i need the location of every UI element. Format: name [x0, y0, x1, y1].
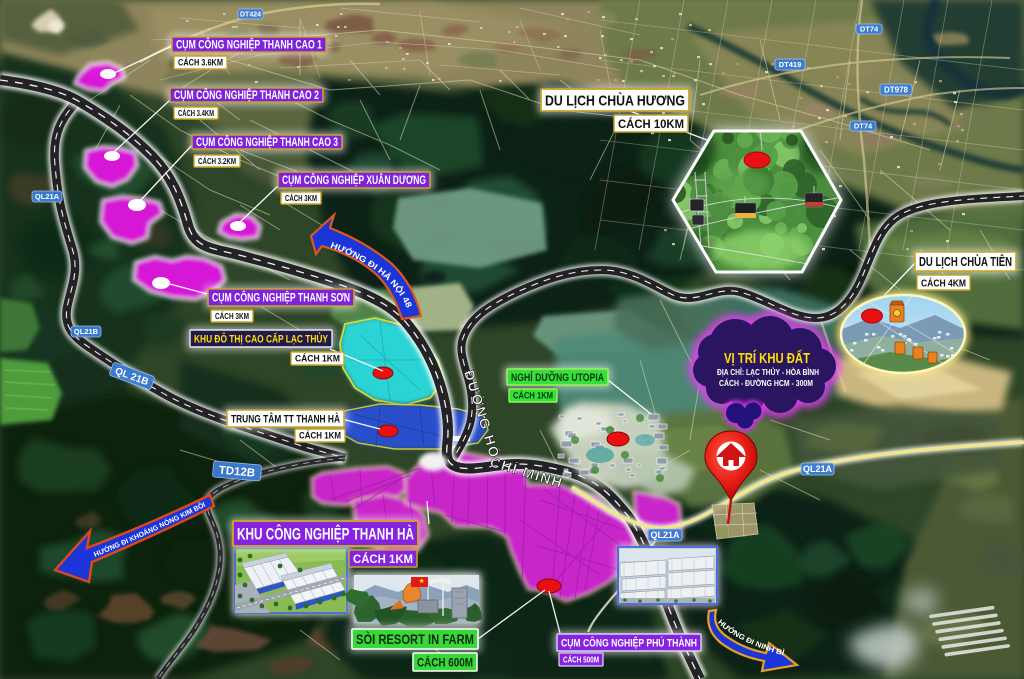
- svg-text:CÁCH 4KM: CÁCH 4KM: [921, 276, 966, 289]
- svg-text:SÒI RESORT IN FARM: SÒI RESORT IN FARM: [356, 632, 474, 647]
- svg-text:CỤM CÔNG NGHIỆP THANH CAO 1: CỤM CÔNG NGHIỆP THANH CAO 1: [176, 39, 322, 52]
- svg-text:CÁCH - ĐƯỜNG HCM - 300M: CÁCH - ĐƯỜNG HCM - 300M: [719, 379, 813, 388]
- svg-text:CỤM CÔNG NGHIỆP THANH SƠN: CỤM CÔNG NGHIỆP THANH SƠN: [212, 292, 350, 305]
- svg-text:CÁCH 3.2KM: CÁCH 3.2KM: [198, 156, 236, 166]
- svg-text:CÁCH 1KM: CÁCH 1KM: [299, 431, 341, 441]
- svg-text:CÁCH 3.6KM: CÁCH 3.6KM: [178, 58, 223, 68]
- svg-text:KHU CÔNG NGHIỆP THANH HÀ: KHU CÔNG NGHIỆP THANH HÀ: [237, 524, 414, 543]
- svg-text:CÁCH 500M: CÁCH 500M: [563, 655, 599, 665]
- svg-text:CÁCH 600M: CÁCH 600M: [417, 654, 473, 669]
- svg-text:DT74: DT74: [860, 25, 879, 34]
- svg-text:CỤM CÔNG NGHIỆP THANH CAO 2: CỤM CÔNG NGHIỆP THANH CAO 2: [174, 89, 319, 102]
- svg-text:DT424: DT424: [240, 12, 261, 19]
- svg-text:CÁCH 1KM: CÁCH 1KM: [513, 391, 553, 401]
- svg-text:VỊ TRÍ KHU ĐẤT: VỊ TRÍ KHU ĐẤT: [724, 350, 810, 367]
- svg-text:CÁCH 3KM: CÁCH 3KM: [215, 311, 249, 321]
- svg-text:CÁCH 1KM: CÁCH 1KM: [353, 551, 413, 566]
- svg-text:CỤM CÔNG NGHIỆP PHÚ THÀNH: CỤM CÔNG NGHIỆP PHÚ THÀNH: [561, 636, 697, 649]
- svg-text:DU LỊCH CHÙA HƯƠNG: DU LỊCH CHÙA HƯƠNG: [545, 91, 685, 109]
- svg-text:DU LỊCH CHÙA TIÊN: DU LỊCH CHÙA TIÊN: [919, 254, 1012, 269]
- svg-text:ĐỊA CHỈ: LẠC THỦY - HÒA BÌNH: ĐỊA CHỈ: LẠC THỦY - HÒA BÌNH: [717, 368, 819, 377]
- svg-text:DT978: DT978: [884, 85, 909, 94]
- svg-text:NGHỈ DƯỠNG UTOPIA: NGHỈ DƯỠNG UTOPIA: [511, 371, 604, 384]
- svg-text:DT74: DT74: [854, 122, 873, 131]
- svg-text:TRUNG TÂM TT THANH HÀ: TRUNG TÂM TT THANH HÀ: [231, 412, 340, 425]
- svg-text:QL21A: QL21A: [650, 530, 680, 540]
- svg-text:QL21A: QL21A: [35, 192, 60, 201]
- svg-text:QL21A: QL21A: [803, 464, 833, 474]
- svg-text:KHU ĐÔ THỊ CAO CẤP LẠC THỦY: KHU ĐÔ THỊ CAO CẤP LẠC THỦY: [194, 332, 328, 345]
- svg-text:CÁCH 3KM: CÁCH 3KM: [285, 193, 317, 203]
- svg-text:QL21B: QL21B: [74, 327, 99, 336]
- svg-text:CÁCH 1KM: CÁCH 1KM: [295, 354, 340, 364]
- svg-text:DT419: DT419: [779, 60, 802, 69]
- svg-text:CỤM CÔNG NGHIỆP XUÂN DƯƠNG: CỤM CÔNG NGHIỆP XUÂN DƯƠNG: [282, 174, 426, 187]
- svg-text:CÁCH 10KM: CÁCH 10KM: [618, 116, 684, 131]
- svg-text:CÁCH 3.4KM: CÁCH 3.4KM: [178, 108, 214, 118]
- svg-text:CỤM CÔNG NGHIỆP THANH CAO 3: CỤM CÔNG NGHIỆP THANH CAO 3: [196, 136, 338, 149]
